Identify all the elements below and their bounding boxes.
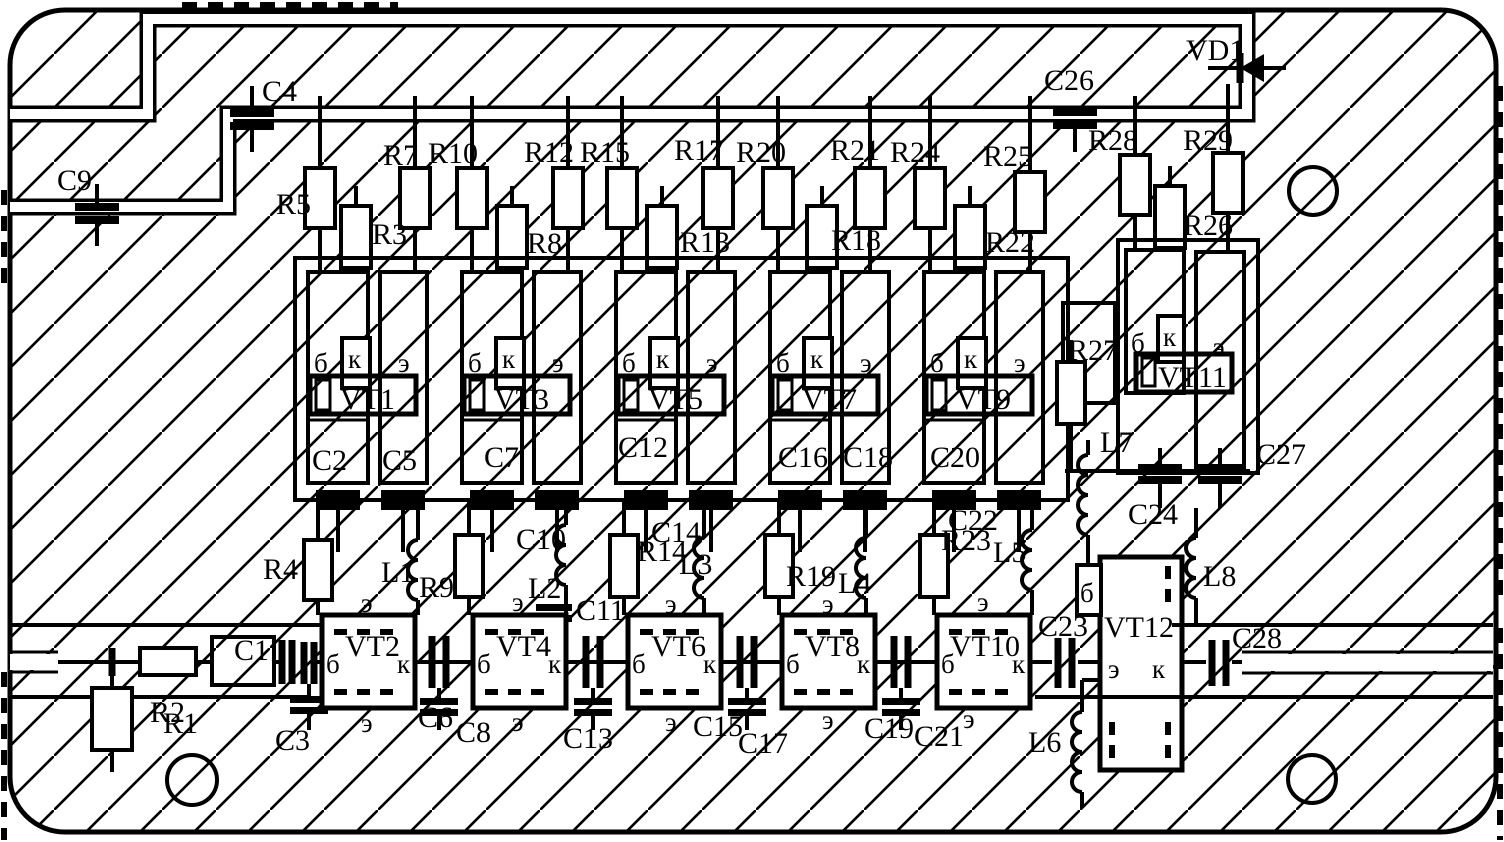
capacitor-C1-label: C1 [234, 634, 269, 667]
capacitor-C2-label: C2 [312, 444, 347, 477]
base-label: б [468, 348, 482, 378]
capacitor-C20-label: C20 [930, 441, 980, 474]
resistor-R20-label: R20 [736, 136, 786, 169]
emitter-label: э [977, 587, 989, 617]
inductor-L8-label: L8 [1203, 560, 1236, 593]
resistor-R28-label: R28 [1088, 124, 1138, 157]
base-label: б [632, 649, 646, 679]
resistor-R12-label: R12 [524, 136, 574, 169]
resistor-R18-label: R18 [831, 224, 881, 257]
capacitor-C27-label: C27 [1256, 438, 1306, 471]
capacitor-C3-label: C3 [275, 724, 310, 757]
collector-label: к [548, 649, 562, 679]
capacitor-C16-label: C16 [778, 441, 828, 474]
base-label: б [941, 649, 955, 679]
inductor-L5-label: L5 [993, 536, 1026, 569]
emitter-label: э [512, 587, 524, 617]
resistor-R4-label: R4 [263, 553, 298, 586]
emitter-label: э [512, 707, 524, 737]
resistor-R22-label: R22 [985, 226, 1035, 259]
resistor-R8-label: R8 [527, 227, 562, 260]
capacitor-C18-label: C18 [843, 441, 893, 474]
collector-label: к [1152, 654, 1166, 684]
collector-label: к [703, 649, 717, 679]
capacitor-C21-label: C21 [914, 720, 964, 753]
emitter-label: э [860, 348, 872, 378]
transistor-VT5-label: VT5 [648, 383, 703, 416]
capacitor-C9-label: C9 [57, 164, 92, 197]
inductor-L2-label: L2 [528, 572, 561, 605]
capacitor-C28-label: C28 [1232, 622, 1282, 655]
transistor-VT11-label: VT11 [1158, 361, 1227, 394]
emitter-label: э [665, 589, 677, 619]
base-label: б [326, 649, 340, 679]
collector-label: к [656, 344, 670, 374]
inductor-L1-label: L1 [381, 556, 414, 589]
capacitor-C12-label: C12 [618, 431, 668, 464]
capacitor-C10-label: C10 [516, 523, 566, 556]
base-label: б [776, 348, 790, 378]
collector-label: к [397, 649, 411, 679]
resistor-R7-label: R7 [383, 139, 418, 172]
collector-label: к [1012, 649, 1026, 679]
capacitor-C15-label: C15 [693, 710, 743, 743]
base-label: б [622, 348, 636, 378]
transistor-VT2-label: VT2 [345, 630, 400, 663]
emitter-label: э [398, 348, 410, 378]
emitter-label: э [1213, 332, 1225, 362]
base-label: б [786, 649, 800, 679]
emitter-label: э [361, 588, 373, 618]
inductor-L6-label: L6 [1028, 726, 1061, 759]
capacitor-C13-label: C13 [563, 722, 613, 755]
transistor-VT1-label: VT1 [340, 383, 395, 416]
transistor-VT4-label: VT4 [496, 630, 551, 663]
resistor-R29-label: R29 [1183, 124, 1233, 157]
capacitor-C5-label: C5 [382, 444, 417, 477]
capacitor-C6-label: C6 [418, 701, 453, 734]
collector-label: к [857, 649, 871, 679]
capacitor-C7-label: C7 [484, 441, 519, 474]
emitter-label: э [706, 348, 718, 378]
base-label: б [930, 348, 944, 378]
transistor-VT8-label: VT8 [805, 630, 860, 663]
capacitor-C26-label: C26 [1044, 64, 1094, 97]
collector-label: к [502, 344, 516, 374]
base-label: б [1080, 578, 1094, 608]
collector-label: к [1163, 322, 1177, 352]
base-label: б [477, 649, 491, 679]
collector-label: к [810, 344, 824, 374]
resistor-R25-label: R25 [983, 140, 1033, 173]
resistor-R17-label: R17 [674, 134, 724, 167]
resistor-R3-label: R3 [372, 218, 407, 251]
capacitor-C24-label: C24 [1128, 498, 1178, 531]
inductor-L3-label: L3 [679, 548, 712, 581]
resistor-R10-label: R10 [428, 137, 478, 170]
transistor-VT10-label: VT10 [950, 630, 1020, 663]
resistor-R23-label: R23 [941, 524, 991, 557]
resistor-R5-label: R5 [276, 188, 311, 221]
resistor-R1-label: R1 [163, 707, 198, 740]
emitter-label: э [1014, 348, 1026, 378]
emitter-label: э [361, 708, 373, 738]
capacitor-C4-label: C4 [262, 75, 297, 108]
transistor-VT12-label: VT12 [1104, 611, 1174, 644]
transistor-VT9-label: VT9 [956, 383, 1011, 416]
emitter-label: э [963, 704, 975, 734]
resistor-R9-label: R9 [419, 571, 454, 604]
resistor-R15-label: R15 [580, 136, 630, 169]
resistor-R26-label: R26 [1183, 209, 1233, 242]
resistor-R21-label: R21 [830, 134, 880, 167]
capacitor-C8-label: C8 [456, 716, 491, 749]
emitter-label: э [665, 707, 677, 737]
emitter-label: э [1108, 654, 1120, 684]
capacitor-C19-label: C19 [864, 712, 914, 745]
resistor-R13-label: R13 [680, 226, 730, 259]
hybrid-ic-topology-diagram: VD1 C4 C9 C26 R5 R7 R10 R12 R15 R17 R20 … [0, 0, 1504, 842]
inductor-L4-label: L4 [838, 567, 871, 600]
emitter-label: э [552, 348, 564, 378]
base-label: б [314, 348, 328, 378]
emitter-label: э [822, 589, 834, 619]
collector-label: к [964, 344, 978, 374]
resistor-R24-label: R24 [890, 136, 940, 169]
transistor-VT6-label: VT6 [651, 630, 706, 663]
inductor-L7-label: L7 [1100, 426, 1133, 459]
emitter-label: э [822, 705, 834, 735]
capacitor-C17-label: C17 [738, 727, 788, 760]
resistor-R27-label: R27 [1068, 334, 1118, 367]
base-label: б [1131, 328, 1145, 358]
transistor-VT7-label: VT7 [802, 383, 857, 416]
collector-label: к [348, 344, 362, 374]
diode-VD1-label: VD1 [1186, 34, 1244, 67]
transistor-VT3-label: VT3 [494, 383, 549, 416]
